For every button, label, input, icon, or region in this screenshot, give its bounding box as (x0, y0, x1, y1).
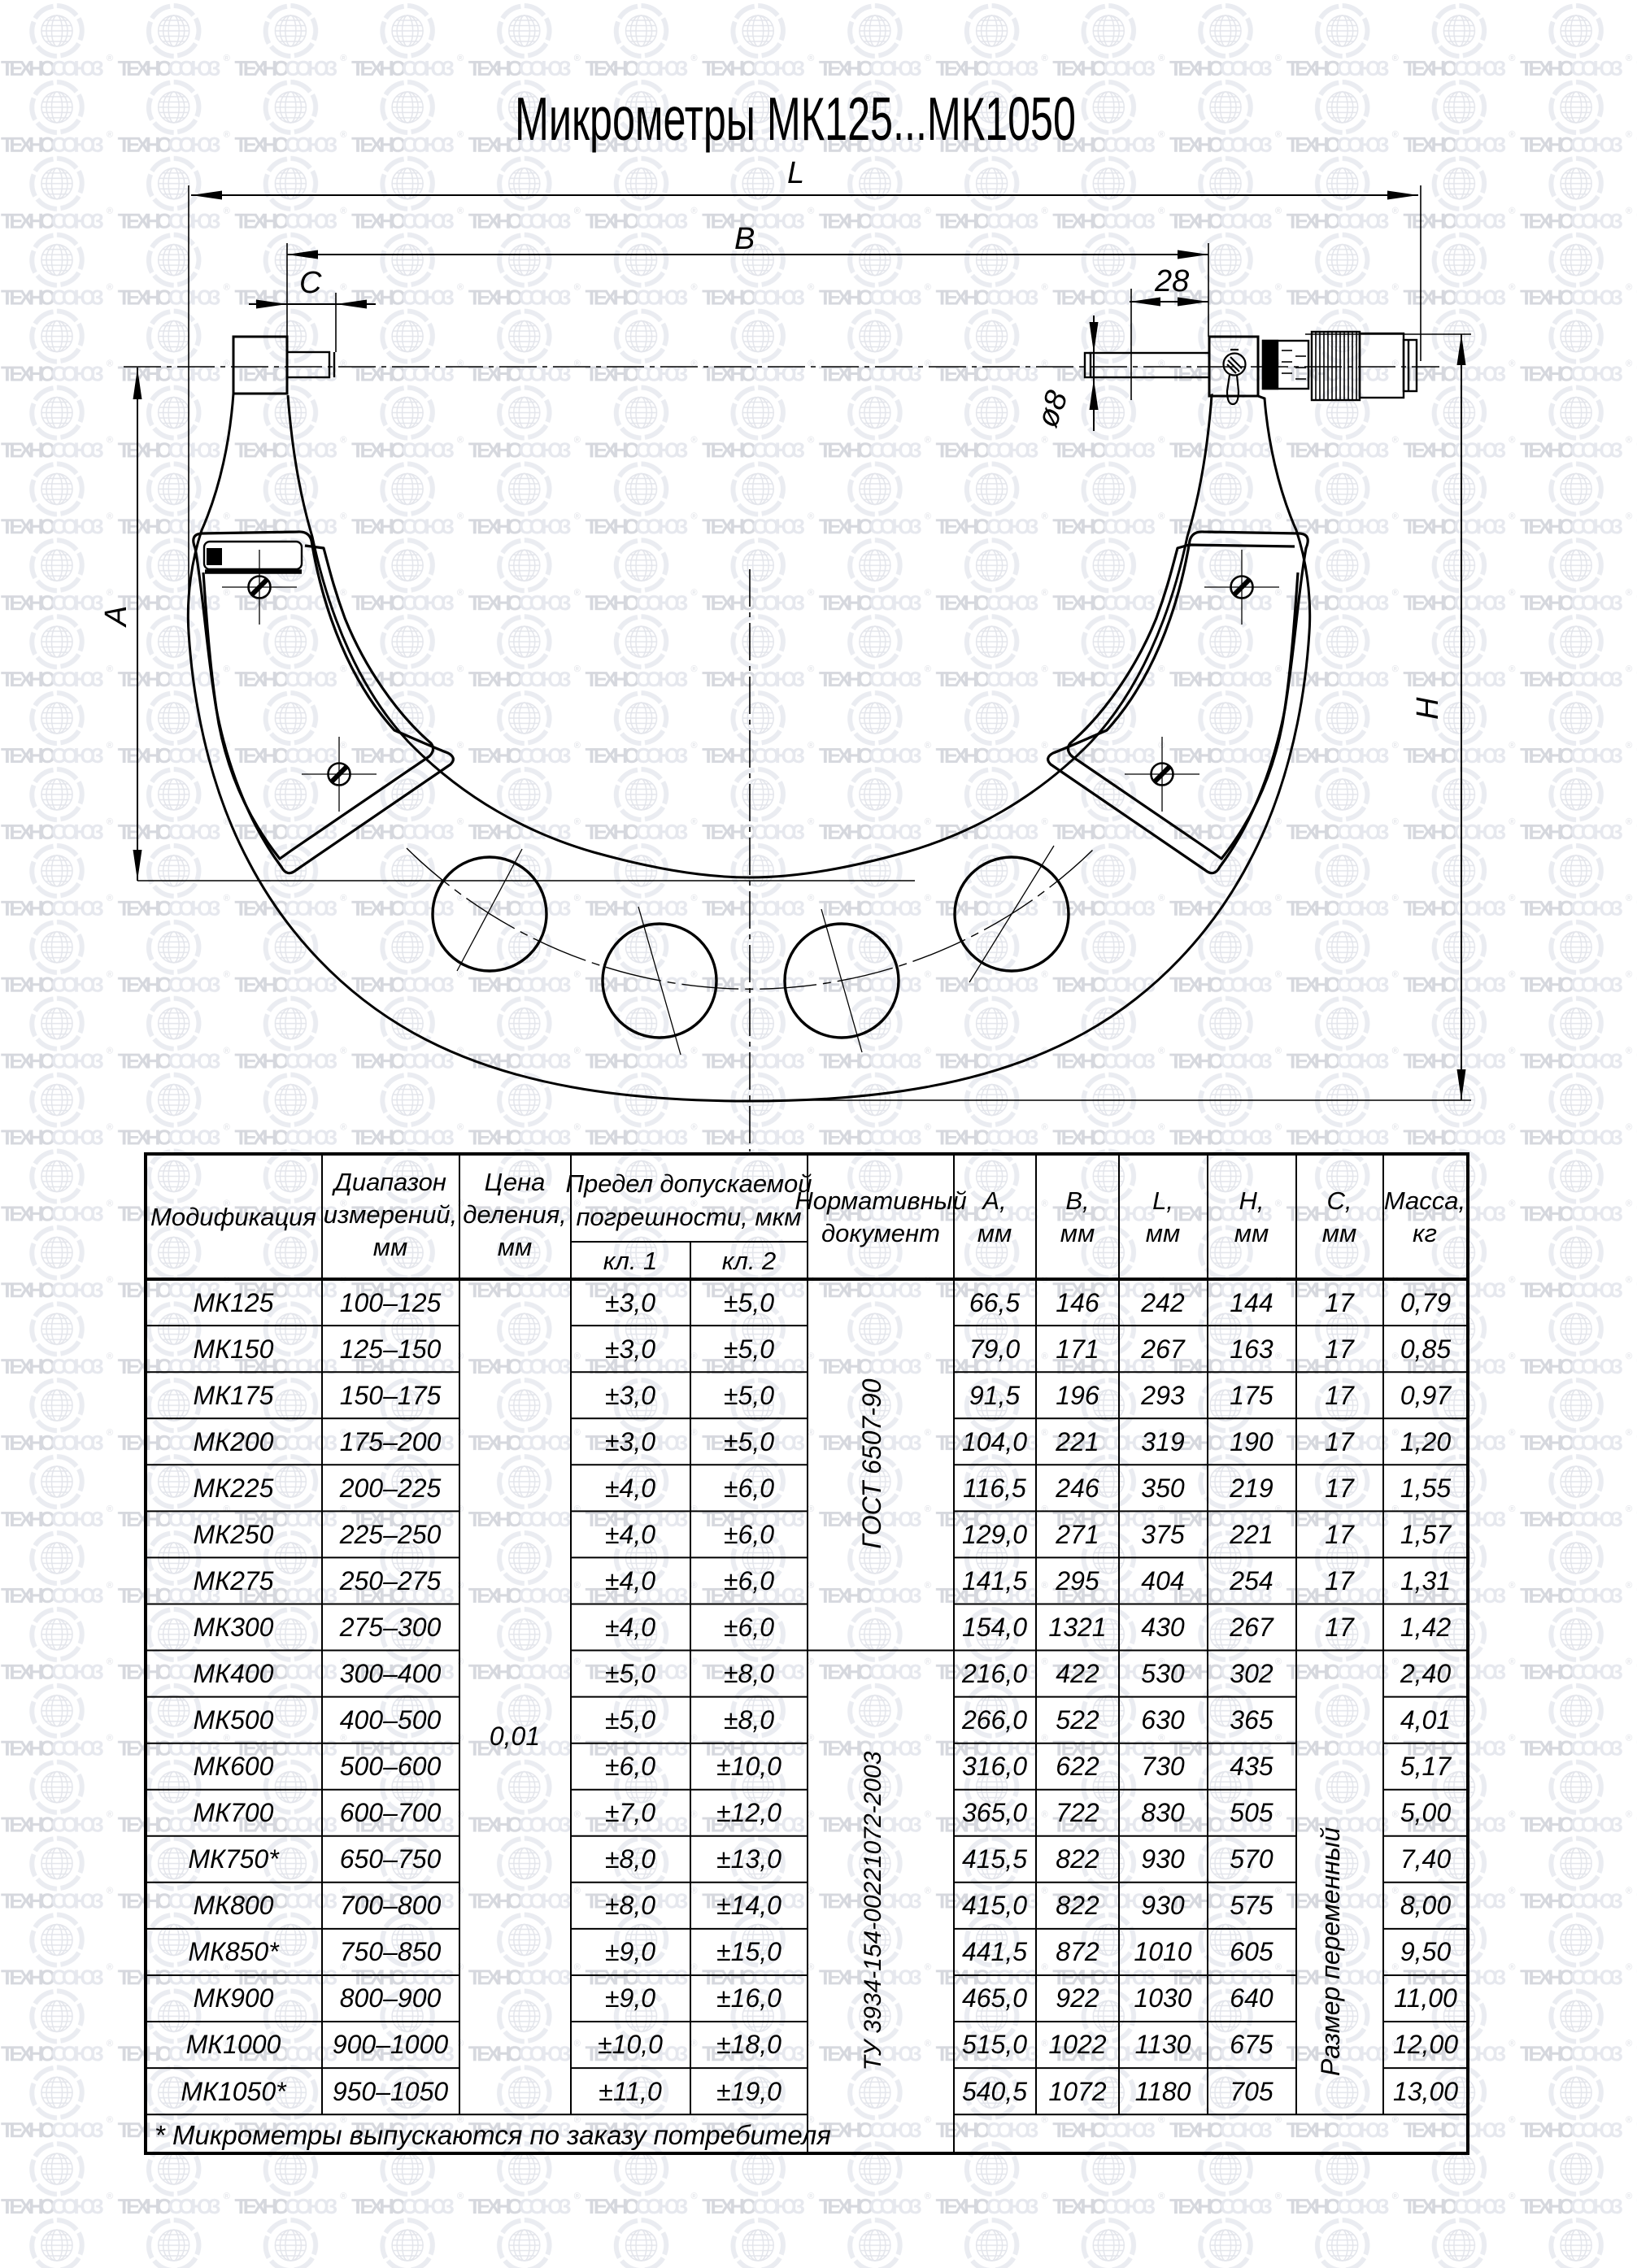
svg-text:±5,0: ±5,0 (605, 1659, 655, 1688)
svg-text:17: 17 (1325, 1288, 1355, 1317)
svg-text:±8,0: ±8,0 (724, 1705, 774, 1735)
svg-text:Цена: Цена (485, 1168, 546, 1196)
svg-text:4,01: 4,01 (1400, 1705, 1451, 1735)
svg-text:±4,0: ±4,0 (605, 1520, 655, 1549)
svg-text:705: 705 (1230, 2077, 1273, 2106)
svg-text:822: 822 (1056, 1891, 1099, 1920)
svg-text:830: 830 (1141, 1798, 1185, 1827)
svg-text:300–400: 300–400 (340, 1659, 442, 1688)
svg-text:267: 267 (1229, 1613, 1274, 1642)
svg-text:216,0: 216,0 (961, 1659, 1027, 1688)
svg-text:104,0: 104,0 (962, 1427, 1027, 1456)
svg-text:L: L (787, 156, 804, 190)
svg-text:267: 267 (1140, 1334, 1186, 1364)
svg-text:295: 295 (1055, 1566, 1099, 1595)
svg-text:мм: мм (1234, 1219, 1269, 1247)
svg-text:430: 430 (1141, 1613, 1185, 1642)
svg-text:±10,0: ±10,0 (598, 2030, 663, 2059)
svg-text:B: B (734, 222, 755, 256)
svg-text:12,00: 12,00 (1393, 2030, 1458, 2059)
svg-text:1180: 1180 (1135, 2077, 1191, 2106)
svg-text:МК225: МК225 (194, 1474, 274, 1503)
svg-text:1321: 1321 (1048, 1613, 1106, 1642)
svg-text:Диапазон: Диапазон (332, 1168, 446, 1196)
svg-text:600–700: 600–700 (340, 1798, 442, 1827)
svg-text:1,55: 1,55 (1400, 1474, 1451, 1503)
svg-text:17: 17 (1325, 1334, 1355, 1364)
svg-text:* Микрометры выпускаются по за: * Микрометры выпускаются по заказу потре… (155, 2120, 831, 2150)
svg-text:319: 319 (1141, 1427, 1185, 1456)
svg-text:302: 302 (1230, 1659, 1273, 1688)
svg-text:266,0: 266,0 (961, 1705, 1027, 1735)
svg-text:650–750: 650–750 (340, 1844, 442, 1874)
svg-text:±3,0: ±3,0 (605, 1427, 655, 1456)
svg-text:±19,0: ±19,0 (716, 2077, 781, 2106)
svg-text:5,17: 5,17 (1400, 1752, 1452, 1781)
svg-text:293: 293 (1140, 1381, 1185, 1410)
svg-text:441,5: 441,5 (962, 1937, 1027, 1966)
svg-text:±6,0: ±6,0 (724, 1566, 774, 1595)
svg-text:кл. 1: кл. 1 (603, 1247, 658, 1275)
svg-text:Н,: Н, (1239, 1186, 1265, 1215)
svg-text:11,00: 11,00 (1394, 1983, 1457, 2013)
svg-text:125–150: 125–150 (340, 1334, 442, 1364)
svg-text:МК275: МК275 (194, 1566, 274, 1595)
svg-text:деления,: деления, (463, 1200, 567, 1229)
svg-text:±18,0: ±18,0 (716, 2030, 781, 2059)
svg-text:МК300: МК300 (194, 1613, 274, 1642)
svg-text:документ: документ (821, 1219, 940, 1247)
svg-text:мм: мм (498, 1233, 533, 1261)
svg-text:±6,0: ±6,0 (724, 1474, 774, 1503)
svg-text:221: 221 (1229, 1520, 1273, 1549)
svg-text:1,42: 1,42 (1400, 1613, 1451, 1642)
svg-text:МК175: МК175 (194, 1381, 274, 1410)
svg-text:540,5: 540,5 (962, 2077, 1027, 2106)
svg-text:271: 271 (1055, 1520, 1099, 1549)
svg-text:522: 522 (1056, 1705, 1099, 1735)
svg-text:116,5: 116,5 (963, 1474, 1026, 1503)
svg-text:242: 242 (1140, 1288, 1185, 1317)
svg-text:Предел допускаемой: Предел допускаемой (566, 1169, 812, 1198)
svg-text:1072: 1072 (1048, 2077, 1106, 2106)
svg-text:141,5: 141,5 (962, 1566, 1027, 1595)
svg-text:A: A (99, 606, 133, 628)
svg-text:675: 675 (1230, 2030, 1273, 2059)
svg-text:±4,0: ±4,0 (605, 1474, 655, 1503)
svg-text:154,0: 154,0 (962, 1613, 1027, 1642)
svg-text:200–225: 200–225 (339, 1474, 442, 1503)
svg-text:163: 163 (1230, 1334, 1273, 1364)
svg-text:Размер переменный: Размер переменный (1316, 1827, 1345, 2077)
svg-text:800–900: 800–900 (340, 1983, 442, 2013)
svg-text:515,0: 515,0 (962, 2030, 1027, 2059)
svg-text:640: 640 (1230, 1983, 1273, 2013)
svg-text:±5,0: ±5,0 (605, 1705, 655, 1735)
svg-text:Масса,: Масса, (1384, 1186, 1465, 1215)
svg-text:кл. 2: кл. 2 (722, 1247, 777, 1275)
svg-text:±13,0: ±13,0 (716, 1844, 781, 1874)
svg-text:1,20: 1,20 (1400, 1427, 1451, 1456)
svg-text:700–800: 700–800 (340, 1891, 442, 1920)
svg-text:МК200: МК200 (194, 1427, 274, 1456)
svg-text:±4,0: ±4,0 (605, 1613, 655, 1642)
svg-text:измерений,: измерений, (324, 1200, 457, 1229)
svg-text:630: 630 (1141, 1705, 1185, 1735)
svg-text:МК800: МК800 (194, 1891, 274, 1920)
svg-text:930: 930 (1141, 1844, 1185, 1874)
svg-text:415,5: 415,5 (962, 1844, 1027, 1874)
svg-text:622: 622 (1056, 1752, 1099, 1781)
svg-text:±12,0: ±12,0 (716, 1798, 781, 1827)
svg-text:219: 219 (1229, 1474, 1273, 1503)
svg-text:930: 930 (1141, 1891, 1185, 1920)
svg-text:17: 17 (1325, 1427, 1355, 1456)
svg-text:±5,0: ±5,0 (724, 1334, 774, 1364)
svg-text:100–125: 100–125 (340, 1288, 442, 1317)
svg-text:0,97: 0,97 (1400, 1381, 1452, 1410)
svg-text:17: 17 (1325, 1381, 1355, 1410)
svg-text:±3,0: ±3,0 (605, 1334, 655, 1364)
svg-text:МК250: МК250 (194, 1520, 274, 1549)
svg-text:822: 822 (1056, 1844, 1099, 1874)
svg-text:365,0: 365,0 (962, 1798, 1027, 1827)
svg-text:415,0: 415,0 (962, 1891, 1027, 1920)
svg-text:1030: 1030 (1134, 1983, 1191, 2013)
svg-text:922: 922 (1056, 1983, 1099, 2013)
svg-text:17: 17 (1325, 1474, 1355, 1503)
svg-text:±3,0: ±3,0 (605, 1288, 655, 1317)
svg-text:400–500: 400–500 (340, 1705, 442, 1735)
svg-text:275–300: 275–300 (339, 1613, 442, 1642)
svg-text:±9,0: ±9,0 (605, 1937, 655, 1966)
svg-text:0,85: 0,85 (1400, 1334, 1451, 1364)
svg-text:316,0: 316,0 (962, 1752, 1027, 1781)
svg-text:375: 375 (1141, 1520, 1185, 1549)
svg-text:±5,0: ±5,0 (724, 1427, 774, 1456)
svg-text:730: 730 (1141, 1752, 1185, 1781)
svg-text:175–200: 175–200 (340, 1427, 442, 1456)
svg-text:МК150: МК150 (194, 1334, 274, 1364)
svg-text:28: 28 (1154, 264, 1189, 298)
svg-text:мм: мм (1322, 1219, 1357, 1247)
svg-text:17: 17 (1325, 1520, 1355, 1549)
svg-text:350: 350 (1141, 1474, 1185, 1503)
svg-text:±6,0: ±6,0 (724, 1613, 774, 1642)
svg-text:146: 146 (1056, 1288, 1099, 1317)
svg-text:404: 404 (1141, 1566, 1184, 1595)
svg-text:722: 722 (1056, 1798, 1099, 1827)
svg-text:465,0: 465,0 (962, 1983, 1027, 2013)
svg-text:66,5: 66,5 (969, 1288, 1020, 1317)
svg-text:175: 175 (1230, 1381, 1273, 1410)
svg-text:МК1000: МК1000 (186, 2030, 281, 2059)
svg-text:±14,0: ±14,0 (716, 1891, 781, 1920)
svg-text:МК1050*: МК1050* (181, 2077, 287, 2106)
svg-text:365: 365 (1230, 1705, 1273, 1735)
svg-text:5,00: 5,00 (1400, 1798, 1451, 1827)
svg-text:196: 196 (1056, 1381, 1099, 1410)
svg-text:900–1000: 900–1000 (333, 2030, 449, 2059)
svg-text:575: 575 (1230, 1891, 1273, 1920)
svg-text:кг: кг (1413, 1219, 1437, 1247)
svg-text:500–600: 500–600 (340, 1752, 442, 1781)
svg-text:144: 144 (1230, 1288, 1273, 1317)
svg-text:435: 435 (1230, 1752, 1273, 1781)
svg-text:МК900: МК900 (194, 1983, 274, 2013)
svg-text:872: 872 (1056, 1937, 1099, 1966)
svg-text:0,79: 0,79 (1400, 1288, 1451, 1317)
svg-text:МК125: МК125 (194, 1288, 274, 1317)
svg-text:225–250: 225–250 (339, 1520, 442, 1549)
svg-text:Микрометры МК125...МК1050: Микрометры МК125...МК1050 (515, 85, 1076, 153)
svg-text:±16,0: ±16,0 (716, 1983, 781, 2013)
svg-text:±8,0: ±8,0 (605, 1844, 655, 1874)
svg-text:1010: 1010 (1134, 1937, 1191, 1966)
svg-text:950–1050: 950–1050 (333, 2077, 449, 2106)
svg-text:±6,0: ±6,0 (605, 1752, 655, 1781)
svg-text:C: C (299, 266, 322, 300)
svg-text:±5,0: ±5,0 (724, 1288, 774, 1317)
svg-text:Нормативный: Нормативный (795, 1186, 966, 1215)
svg-text:±15,0: ±15,0 (716, 1937, 781, 1966)
svg-text:605: 605 (1230, 1937, 1273, 1966)
svg-text:МК850*: МК850* (188, 1937, 280, 1966)
svg-text:мм: мм (1146, 1219, 1181, 1247)
svg-text:МК500: МК500 (194, 1705, 274, 1735)
svg-text:171: 171 (1056, 1334, 1099, 1364)
svg-text:79,0: 79,0 (969, 1334, 1020, 1364)
svg-text:1,57: 1,57 (1400, 1520, 1452, 1549)
svg-text:0,01: 0,01 (490, 1722, 540, 1751)
svg-text:190: 190 (1230, 1427, 1273, 1456)
svg-text:91,5: 91,5 (969, 1381, 1020, 1410)
svg-text:250–275: 250–275 (339, 1566, 442, 1595)
svg-text:±7,0: ±7,0 (605, 1798, 655, 1827)
svg-text:±5,0: ±5,0 (724, 1381, 774, 1410)
svg-text:±3,0: ±3,0 (605, 1381, 655, 1410)
svg-text:17: 17 (1325, 1613, 1355, 1642)
svg-text:Модификация: Модификация (150, 1203, 316, 1231)
svg-text:530: 530 (1141, 1659, 1185, 1688)
svg-text:8,00: 8,00 (1400, 1891, 1451, 1920)
svg-text:С,: С, (1327, 1186, 1352, 1215)
svg-text:1022: 1022 (1048, 2030, 1106, 2059)
svg-text:±9,0: ±9,0 (605, 1983, 655, 2013)
svg-text:±8,0: ±8,0 (605, 1891, 655, 1920)
svg-text:129,0: 129,0 (962, 1520, 1027, 1549)
svg-text:254: 254 (1229, 1566, 1273, 1595)
svg-text:13,00: 13,00 (1393, 2077, 1458, 2106)
svg-text:570: 570 (1230, 1844, 1273, 1874)
svg-text:17: 17 (1325, 1566, 1355, 1595)
svg-text:221: 221 (1055, 1427, 1099, 1456)
svg-text:150–175: 150–175 (340, 1381, 442, 1410)
svg-text:А,: А, (981, 1186, 1006, 1215)
svg-text:ГОСТ 6507-90: ГОСТ 6507-90 (857, 1378, 886, 1548)
svg-text:В,: В, (1065, 1186, 1089, 1215)
svg-text:ТУ 3934-154-00221072-2003: ТУ 3934-154-00221072-2003 (860, 1751, 886, 2070)
svg-text:±11,0: ±11,0 (599, 2077, 662, 2106)
svg-text:422: 422 (1056, 1659, 1099, 1688)
svg-text:±8,0: ±8,0 (724, 1659, 774, 1688)
svg-text:мм: мм (373, 1233, 408, 1261)
svg-text:1130: 1130 (1135, 2030, 1191, 2059)
svg-text:505: 505 (1230, 1798, 1273, 1827)
svg-text:1,31: 1,31 (1400, 1566, 1451, 1595)
svg-text:МК400: МК400 (194, 1659, 274, 1688)
svg-text:7,40: 7,40 (1400, 1844, 1451, 1874)
svg-text:2,40: 2,40 (1400, 1659, 1451, 1688)
svg-text:мм: мм (1060, 1219, 1095, 1247)
svg-text:±4,0: ±4,0 (605, 1566, 655, 1595)
svg-text:МК700: МК700 (194, 1798, 274, 1827)
svg-text:±10,0: ±10,0 (716, 1752, 781, 1781)
svg-text:МК600: МК600 (194, 1752, 274, 1781)
svg-text:МК750*: МК750* (188, 1844, 280, 1874)
svg-text:погрешности, мкм: погрешности, мкм (576, 1203, 801, 1231)
svg-text:9,50: 9,50 (1400, 1937, 1451, 1966)
svg-text:мм: мм (977, 1219, 1012, 1247)
svg-text:750–850: 750–850 (340, 1937, 442, 1966)
svg-text:L,: L, (1152, 1186, 1173, 1215)
svg-text:±6,0: ±6,0 (724, 1520, 774, 1549)
svg-text:246: 246 (1055, 1474, 1099, 1503)
svg-text:H: H (1411, 697, 1445, 720)
